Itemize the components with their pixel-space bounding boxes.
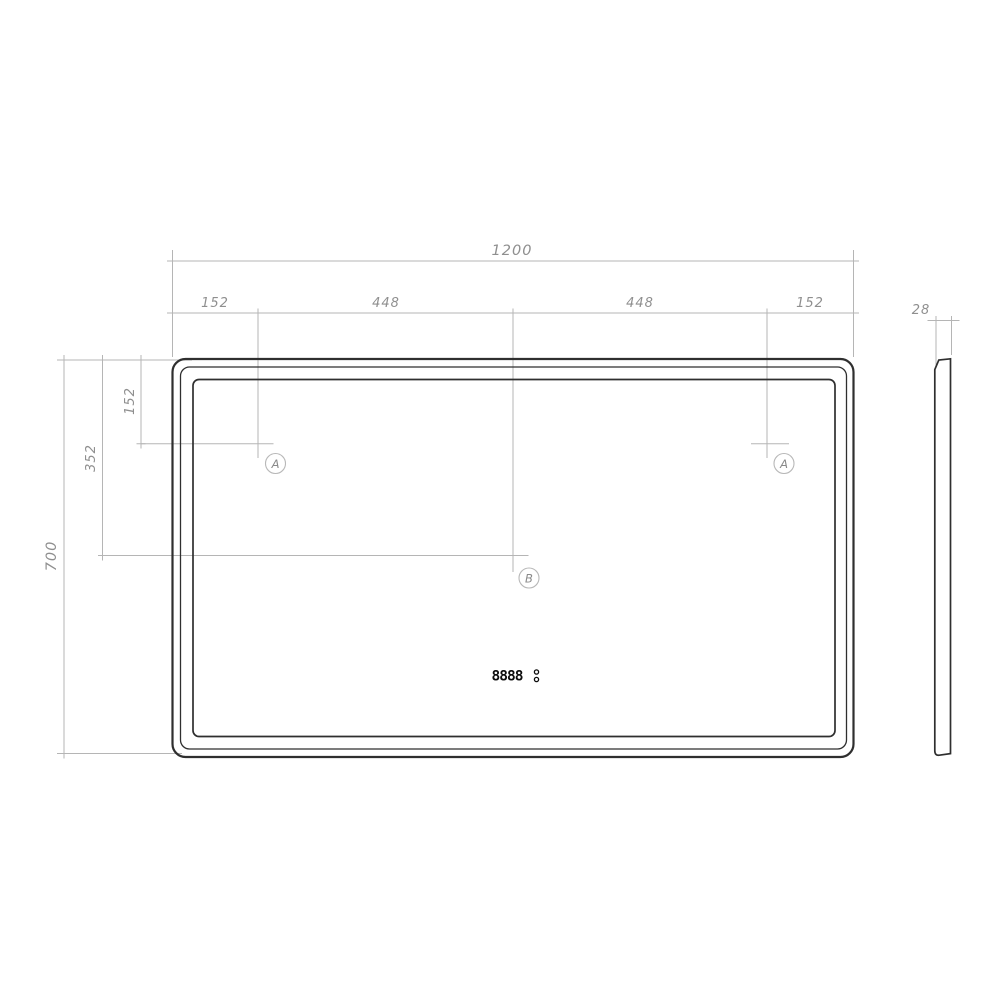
touch-sensor-dot-top-icon	[534, 670, 538, 674]
label-overall-height: 700	[44, 541, 60, 572]
side-view	[935, 359, 951, 755]
clock-display-digits: 8888	[492, 669, 523, 685]
touch-sensor-dot-bottom-icon	[534, 677, 538, 681]
dimension-labels: 1200 152 448 448 152 700 352 152 28	[44, 243, 930, 571]
label-top-segment-2: 448	[372, 296, 400, 311]
label-left-segment-152: 152	[123, 387, 138, 415]
marker-a-left-label: A	[271, 457, 280, 471]
label-overall-width: 1200	[492, 243, 533, 259]
label-top-segment-3: 448	[626, 296, 654, 311]
label-thickness: 28	[912, 303, 931, 318]
label-left-segment-352: 352	[84, 444, 99, 472]
mirror-technical-drawing: 1200 152 448 448 152 700 352 152 28 A A	[0, 0, 1000, 1000]
marker-a-right-label: A	[779, 457, 788, 471]
marker-b-label: B	[525, 572, 533, 586]
label-top-segment-1: 152	[201, 296, 229, 311]
clock-display: 8888	[492, 669, 539, 685]
marker-a-right: A	[774, 454, 794, 474]
side-profile-outline	[935, 359, 951, 755]
marker-a-left: A	[266, 454, 286, 474]
drawing-canvas: 1200 152 448 448 152 700 352 152 28 A A	[0, 0, 1000, 1000]
marker-b-center: B	[519, 568, 539, 588]
label-top-segment-4: 152	[796, 296, 824, 311]
